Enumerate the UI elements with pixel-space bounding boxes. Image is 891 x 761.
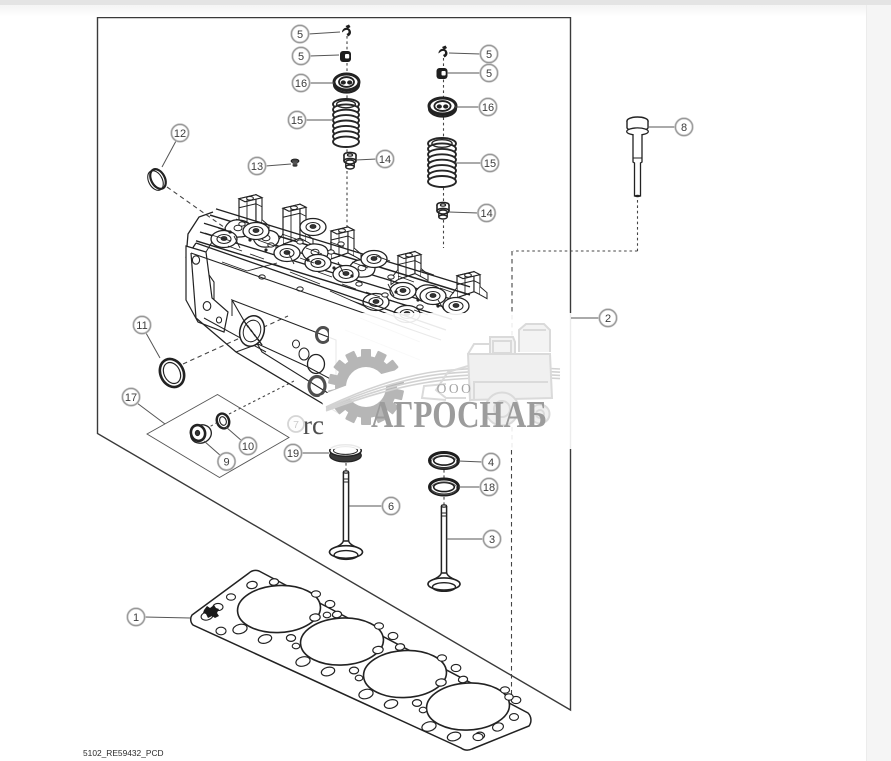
svg-text:3: 3 [489, 534, 495, 546]
svg-text:10: 10 [242, 441, 254, 453]
svg-text:АГРОСНАБ: АГРОСНАБ [371, 394, 547, 436]
svg-text:2: 2 [605, 313, 611, 325]
svg-text:15: 15 [291, 115, 303, 127]
svg-text:12: 12 [174, 128, 186, 140]
svg-text:16: 16 [295, 78, 307, 90]
svg-text:5: 5 [298, 51, 304, 63]
svg-text:19: 19 [287, 448, 299, 460]
svg-text:7: 7 [293, 419, 299, 431]
svg-text:1: 1 [133, 612, 139, 624]
svg-text:5: 5 [297, 29, 303, 41]
svg-text:14: 14 [480, 208, 492, 220]
svg-text:5: 5 [486, 68, 492, 80]
svg-text:9: 9 [223, 456, 229, 468]
svg-text:6: 6 [388, 501, 394, 513]
svg-text:11: 11 [136, 320, 147, 332]
svg-text:4: 4 [488, 457, 494, 469]
svg-text:15: 15 [484, 158, 496, 170]
svg-text:17: 17 [125, 392, 137, 404]
svg-text:rc: rc [303, 410, 324, 440]
svg-text:5: 5 [486, 49, 492, 61]
svg-text:14: 14 [379, 154, 391, 166]
svg-text:18: 18 [483, 482, 495, 494]
svg-text:13: 13 [251, 161, 263, 173]
svg-text:16: 16 [482, 102, 494, 114]
svg-text:8: 8 [681, 122, 687, 134]
